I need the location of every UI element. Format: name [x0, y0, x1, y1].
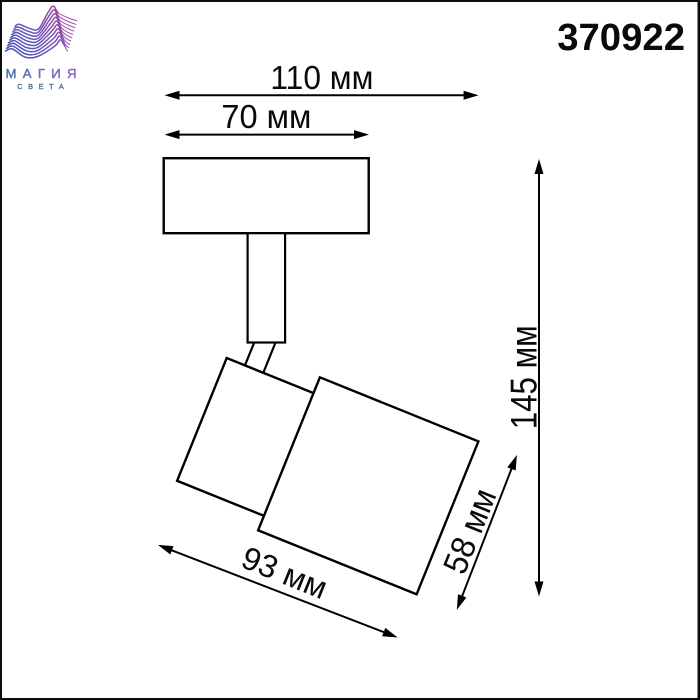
svg-text:370922: 370922	[557, 16, 685, 59]
svg-text:МАГИЯ: МАГИЯ	[6, 66, 77, 81]
svg-text:145 мм: 145 мм	[504, 325, 545, 429]
svg-text:СВЕТА: СВЕТА	[17, 82, 64, 91]
svg-text:110 мм: 110 мм	[270, 60, 373, 97]
svg-text:70 мм: 70 мм	[221, 99, 311, 136]
